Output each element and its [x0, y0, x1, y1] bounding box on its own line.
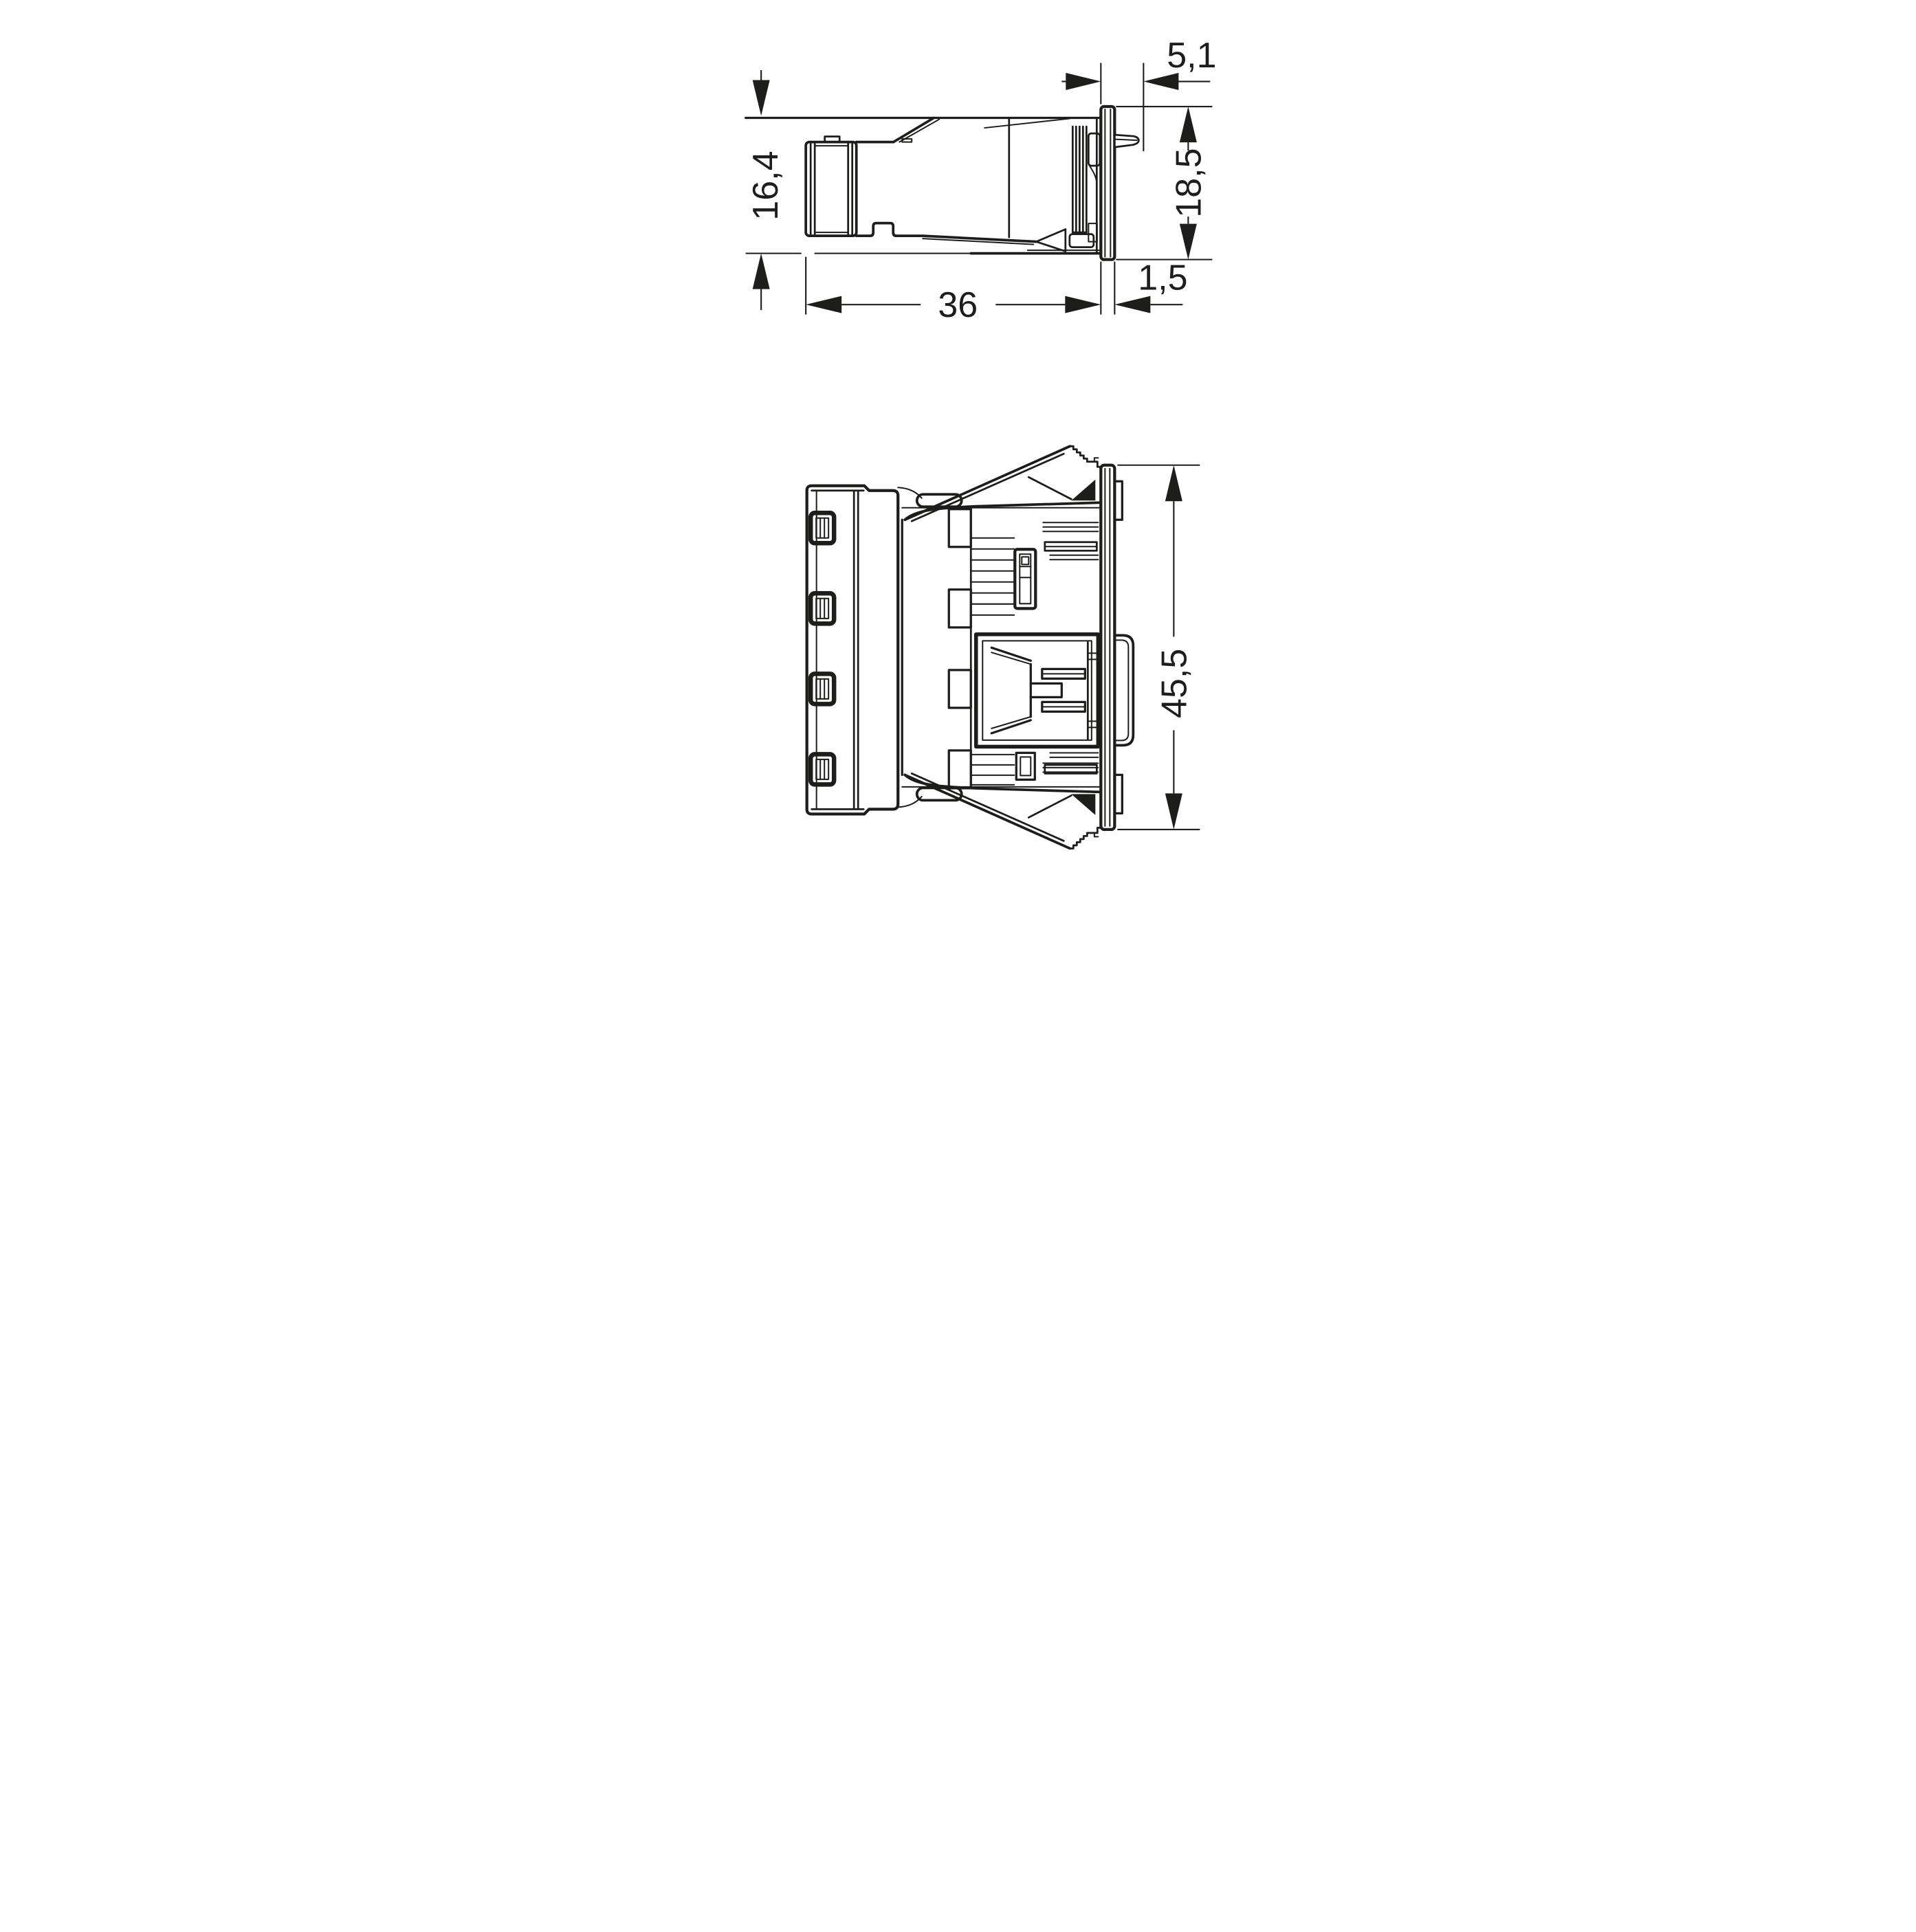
pre-flange-detail — [1088, 118, 1100, 254]
arrow-up-icon — [1165, 465, 1182, 502]
arrow-left-icon — [806, 296, 841, 313]
front-view-body — [806, 446, 1133, 848]
body-tab — [949, 670, 971, 708]
mid-body — [856, 118, 1069, 245]
arrow-up-icon — [752, 254, 769, 289]
central-chamber — [976, 634, 1098, 747]
rib-section — [1072, 126, 1086, 232]
body-tab — [949, 509, 971, 547]
contact-slot — [811, 513, 834, 543]
side-view-body — [745, 107, 1138, 260]
latch-pin — [1114, 135, 1138, 147]
body-tab — [949, 751, 971, 788]
arrow-right-icon — [1066, 73, 1101, 90]
contact-slot — [811, 674, 834, 704]
arrow-left-icon — [1114, 296, 1150, 313]
lower-latch-detail — [1027, 230, 1100, 252]
contact-slot — [811, 754, 834, 784]
side-view: 5,1 16,4 18,5 36 — [745, 36, 1216, 325]
flange-plate — [1101, 465, 1122, 830]
dim-label-45-5: 45,5 — [1154, 649, 1194, 718]
body-tab — [949, 590, 971, 628]
drawing-sheet: 5,1 16,4 18,5 36 — [479, 0, 1438, 966]
technical-drawing: 5,1 16,4 18,5 36 — [479, 0, 1438, 966]
dim-label-18-5: 18,5 — [1169, 148, 1209, 217]
dim-label-16-4: 16,4 — [746, 151, 786, 220]
front-view: 45,5 — [806, 446, 1200, 848]
arrow-up-icon — [1179, 107, 1196, 142]
dim-body-height: 16,4 — [746, 70, 786, 310]
dim-label-1-5: 1,5 — [1138, 258, 1187, 298]
dim-body-length: 36 — [806, 257, 1101, 326]
dim-flange-thickness: 1,5 — [1114, 258, 1187, 315]
arrow-right-icon — [1065, 296, 1101, 313]
flange — [1101, 107, 1114, 260]
arrow-down-icon — [1179, 224, 1196, 260]
dim-label-5-1: 5,1 — [1167, 36, 1216, 76]
contact-slot — [811, 593, 834, 623]
arrow-down-icon — [752, 80, 769, 116]
dim-label-36: 36 — [938, 285, 978, 325]
mounting-plate — [806, 486, 898, 814]
dim-overall-height: 45,5 — [1117, 465, 1200, 830]
dim-flange-height: 18,5 — [1116, 107, 1212, 260]
arrow-down-icon — [1165, 793, 1182, 830]
plug-nose — [806, 137, 857, 236]
release-handle — [1114, 635, 1133, 745]
upper-latch-arm — [898, 446, 1101, 521]
